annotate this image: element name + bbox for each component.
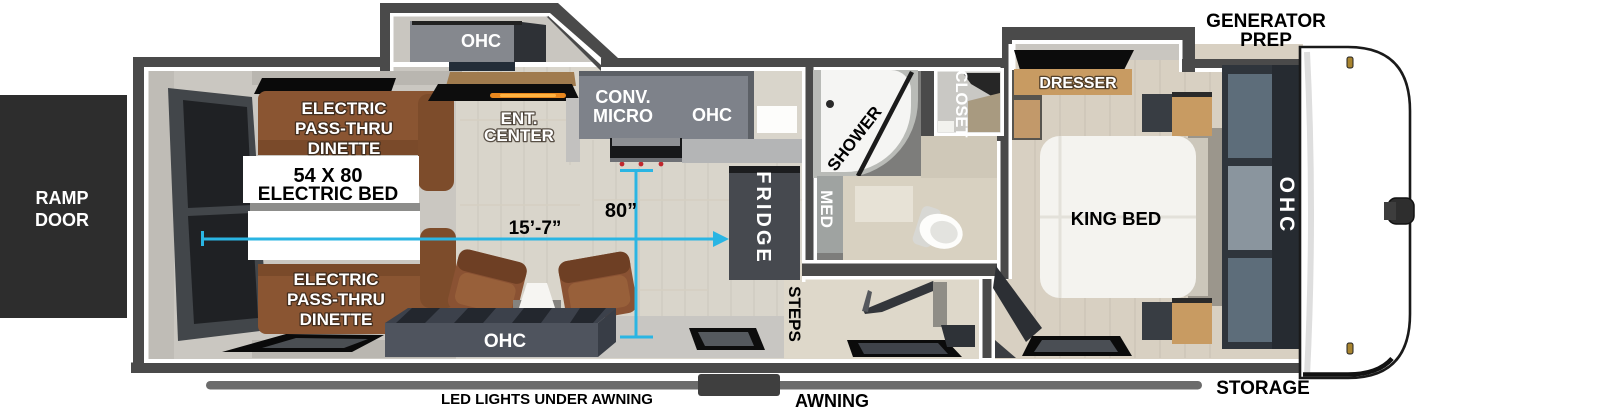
svg-text:KING BED: KING BED (1071, 208, 1161, 229)
svg-text:80”: 80” (605, 200, 637, 222)
svg-text:PASS-THRU: PASS-THRU (287, 290, 385, 309)
svg-text:DINETTE: DINETTE (300, 310, 373, 329)
svg-text:STEPS: STEPS (785, 286, 804, 342)
svg-text:PREP: PREP (1240, 30, 1292, 51)
svg-text:LED LIGHTS UNDER AWNING: LED LIGHTS UNDER AWNING (441, 391, 653, 408)
svg-text:ELECTRIC: ELECTRIC (302, 99, 387, 118)
svg-text:MICRO: MICRO (593, 106, 653, 126)
svg-text:STORAGE: STORAGE (1216, 378, 1310, 399)
svg-text:PASS-THRU: PASS-THRU (295, 119, 393, 138)
svg-text:ELECTRIC: ELECTRIC (294, 270, 379, 289)
svg-text:OHC: OHC (461, 31, 501, 51)
svg-text:15’-7”: 15’-7” (509, 218, 562, 239)
svg-text:DINETTE: DINETTE (308, 139, 381, 158)
svg-text:RAMP: RAMP (36, 188, 89, 208)
svg-text:ELECTRIC BED: ELECTRIC BED (258, 184, 398, 205)
svg-text:DOOR: DOOR (35, 210, 89, 230)
svg-text:OHC: OHC (692, 105, 732, 125)
svg-text:AWNING: AWNING (795, 391, 869, 408)
svg-text:DRESSER: DRESSER (1039, 75, 1117, 92)
svg-text:CONV.: CONV. (595, 87, 650, 107)
svg-text:CENTER: CENTER (484, 126, 554, 145)
svg-text:OHC: OHC (1275, 177, 1298, 236)
svg-text:FRIDGE: FRIDGE (752, 171, 774, 265)
svg-text:OHC: OHC (484, 331, 527, 352)
svg-text:CLOSET: CLOSET (952, 71, 970, 138)
svg-text:MED: MED (817, 190, 836, 228)
svg-text:GENERATOR: GENERATOR (1206, 11, 1326, 32)
